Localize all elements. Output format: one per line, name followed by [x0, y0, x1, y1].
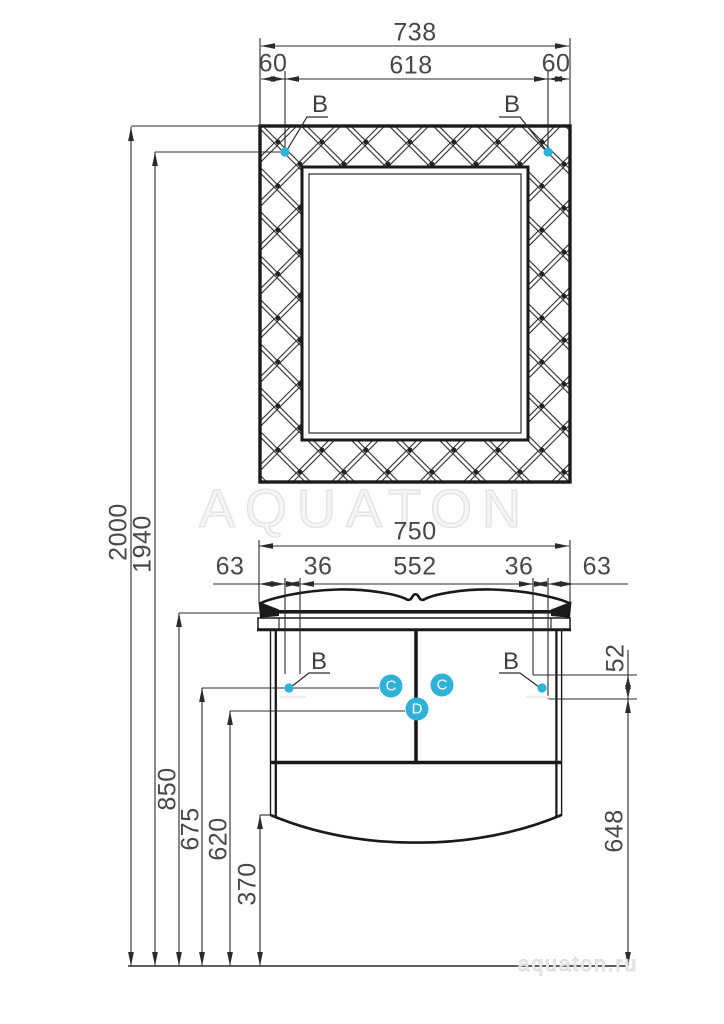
technical-drawing-page: AQUATON aquaton.ru 738 60 618 60 750 63 … — [0, 0, 724, 1024]
marker-b-cabinet-right: B — [503, 650, 519, 674]
sink-rim-right-edge — [551, 602, 572, 618]
dim-label-648: 648 — [603, 809, 628, 852]
brand-watermark: AQUATON — [199, 478, 531, 540]
dim-label-1940: 1940 — [131, 515, 156, 573]
door-center-divider — [414, 630, 418, 763]
mount-dot-mirror-left — [280, 147, 289, 156]
dim-label-675: 675 — [179, 807, 204, 850]
dim-label-36-right: 36 — [505, 555, 534, 580]
mirror-glass — [309, 174, 521, 433]
dim-label-36-left: 36 — [304, 555, 333, 580]
dim-label-552: 552 — [393, 555, 436, 580]
marker-b-mirror-left: B — [312, 93, 328, 117]
marker-b-cabinet-left: B — [311, 650, 327, 674]
dim-label-618: 618 — [389, 54, 432, 79]
sink-rim-left-edge — [259, 602, 280, 618]
counter-apron-band — [258, 618, 570, 630]
dim-label-620: 620 — [207, 817, 232, 860]
sink-basin-back-edge — [279, 610, 551, 614]
dim-label-63-right: 63 — [583, 555, 612, 580]
dim-label-52: 52 — [604, 644, 629, 673]
dim-label-370: 370 — [236, 862, 261, 905]
leader-b-cabinet-left — [291, 673, 330, 687]
dim-label-60-left: 60 — [259, 52, 288, 77]
dim-label-750: 750 — [393, 520, 436, 545]
dim-label-738: 738 — [393, 21, 436, 46]
dim-label-63-left: 63 — [216, 555, 245, 580]
dim-label-850: 850 — [156, 767, 181, 810]
mount-dot-cabinet-left — [284, 683, 293, 692]
sink-top-profile — [259, 589, 571, 604]
mount-dot-mirror-right — [543, 147, 552, 156]
marker-c-left: C — [380, 675, 403, 698]
site-watermark: aquaton.ru — [518, 953, 638, 977]
marker-c-right: C — [431, 674, 454, 697]
mirror-front-view — [260, 126, 570, 482]
mount-dot-cabinet-right — [537, 683, 546, 692]
marker-b-mirror-right: B — [504, 93, 520, 117]
dim-label-60-right: 60 — [542, 52, 571, 77]
apron-curved-bottom — [271, 815, 562, 843]
marker-d-center: D — [406, 698, 429, 721]
